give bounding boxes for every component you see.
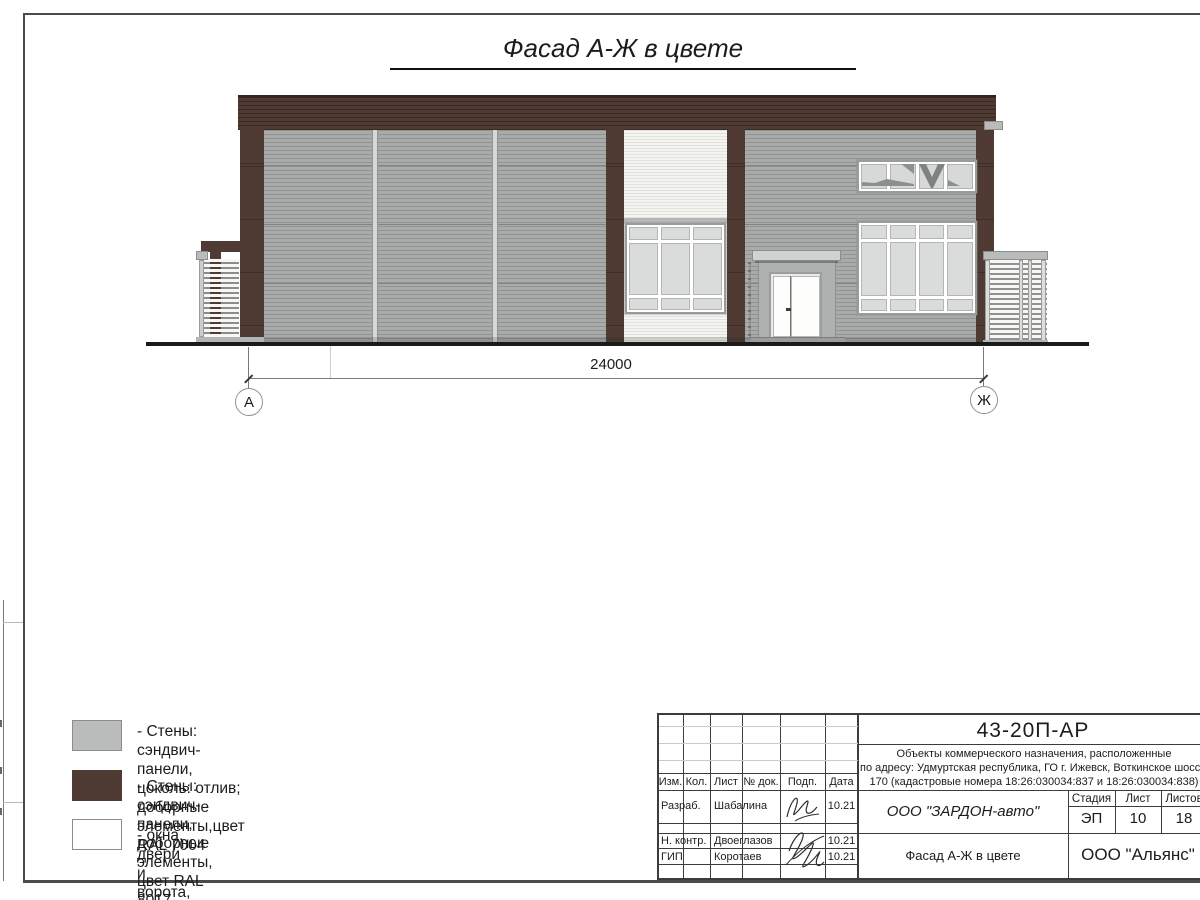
louver-right-post (1041, 260, 1046, 341)
tb-hline (858, 744, 1200, 745)
tb-hline-faint (659, 760, 858, 761)
tb-col-list: Лист (710, 776, 742, 788)
wall-panel-joint (372, 130, 378, 343)
tb-hline (659, 833, 1200, 834)
tb-sheets-value: 18 (1161, 810, 1200, 827)
stray-extension-line (330, 346, 331, 378)
tb-border-left (657, 713, 659, 880)
tb-sheets-label: Листов (1161, 793, 1200, 805)
window-pane (890, 242, 916, 296)
window-pane (861, 225, 887, 239)
door-leaf-right (791, 276, 820, 337)
window-pane (629, 227, 658, 240)
louver-right-post (1019, 260, 1023, 341)
window-pane (661, 243, 690, 295)
window-pane (919, 242, 945, 296)
tb-role: ГИП (661, 851, 683, 863)
louver-left-slats (199, 259, 239, 337)
tb-name: Коротаев (714, 851, 762, 863)
window-pane (693, 243, 722, 295)
tb-hline-faint (659, 743, 858, 744)
tb-drawing-title: Фасад А-Ж в цвете (858, 848, 1068, 863)
window-pane (629, 298, 658, 310)
window-large-right (857, 221, 977, 315)
window-pane (890, 225, 916, 239)
tb-border-bottom (657, 878, 1200, 880)
tb-col-data: Дата (825, 776, 858, 788)
extension-line-a (248, 347, 249, 392)
tb-vline (710, 714, 711, 879)
tb-role: Разраб. (661, 800, 701, 812)
window-pane (861, 299, 887, 311)
tb-sheet-value: 10 (1115, 810, 1161, 827)
door-handle (786, 308, 791, 311)
tb-project-line: по адресу: Удмуртская республика, ГО г. … (860, 761, 1200, 775)
legend-swatch-ral9003 (72, 819, 122, 850)
facade-wall-left (264, 130, 606, 343)
window-pane (947, 299, 973, 311)
axis-marker-a: А (235, 388, 263, 416)
louver-right-post (985, 260, 990, 341)
legend-label: - окна, двери и ворота, цвет RAL 9003 (137, 826, 190, 900)
signature-scribbles (781, 791, 827, 877)
tb-hline (1068, 806, 1200, 807)
tb-project-line: 170 (кадастровые номера 18:26:030034:837… (860, 775, 1200, 789)
window-middle (625, 223, 726, 314)
legend-swatch-ral7004 (72, 720, 122, 751)
tb-role: Н. контр. (661, 835, 706, 847)
facade-column-b (606, 128, 624, 343)
roof-flashing-right (984, 121, 1003, 130)
corner-trim-brackets (748, 262, 751, 338)
side-stamp-divider (3, 622, 23, 623)
tb-hline (659, 864, 858, 865)
tb-hline-faint (659, 726, 858, 727)
window-pane (947, 242, 973, 296)
window-pane (693, 227, 722, 240)
tb-stage-label: Стадия (1068, 793, 1115, 805)
dimension-value: 24000 (561, 356, 661, 373)
louver-right-slats (985, 260, 1047, 341)
window-pane (693, 298, 722, 310)
side-stamp-text-fragment (0, 720, 2, 727)
tb-project-line: Объекты коммерческого назначения, распол… (860, 747, 1200, 761)
tb-col-ndok: № док. (742, 776, 780, 788)
window-pane (890, 299, 916, 311)
tb-hline (659, 823, 858, 824)
tb-col-podp: Подп. (780, 776, 825, 788)
louver-left-cap (196, 251, 208, 260)
window-reflection-graphic (857, 160, 977, 193)
window-pane (861, 242, 887, 296)
tb-name: Двоеглазов (714, 835, 772, 847)
window-pane (919, 225, 945, 239)
tb-date: 10.21 (825, 835, 858, 847)
axis-marker-zh: Ж (970, 386, 998, 414)
tb-col-izm: Изм. (658, 776, 683, 788)
tb-hline (659, 790, 1200, 791)
entrance-door (769, 272, 822, 339)
side-stamp-text-fragment (0, 808, 2, 815)
tb-company: ООО "Альянс" (1068, 845, 1200, 865)
side-stamp-line (3, 600, 4, 881)
window-pane (629, 243, 658, 295)
side-stamp-text-fragment (0, 767, 2, 774)
tb-stage-value: ЭП (1068, 810, 1115, 827)
tb-doc-code: 43-20П-АР (858, 719, 1200, 743)
tb-name: Шабалина (714, 800, 767, 812)
tb-date: 10.21 (825, 800, 858, 812)
louver-left-post (199, 260, 204, 337)
tb-org: ООО "ЗАРДОН-авто" (858, 803, 1068, 820)
facade-column-c (727, 128, 745, 343)
window-pane (947, 225, 973, 239)
window-pane (919, 299, 945, 311)
tb-hline (659, 773, 858, 774)
window-pane (661, 298, 690, 310)
legend-swatch-ral8017 (72, 770, 122, 801)
tb-vline (683, 714, 684, 879)
dimension-line (248, 378, 983, 379)
facade-roof-band (238, 97, 996, 130)
tb-col-kol: Кол. (683, 776, 710, 788)
louver-right-cap (983, 251, 1048, 260)
canopy-shadow (755, 261, 838, 263)
facade-column-a (240, 128, 264, 343)
tb-border-top (657, 713, 1200, 715)
drawing-sheet: Фасад А-Ж в цвете (0, 0, 1200, 900)
tb-date: 10.21 (825, 851, 858, 863)
louver-right-post (1028, 260, 1032, 341)
entrance-canopy (752, 250, 841, 261)
side-stamp-divider (3, 802, 23, 803)
door-split (790, 276, 791, 337)
wall-panel-joint (492, 130, 498, 343)
ground-line (146, 342, 1089, 346)
window-pane (661, 227, 690, 240)
tb-hline (659, 848, 858, 849)
tb-sheet-label: Лист (1115, 793, 1161, 805)
